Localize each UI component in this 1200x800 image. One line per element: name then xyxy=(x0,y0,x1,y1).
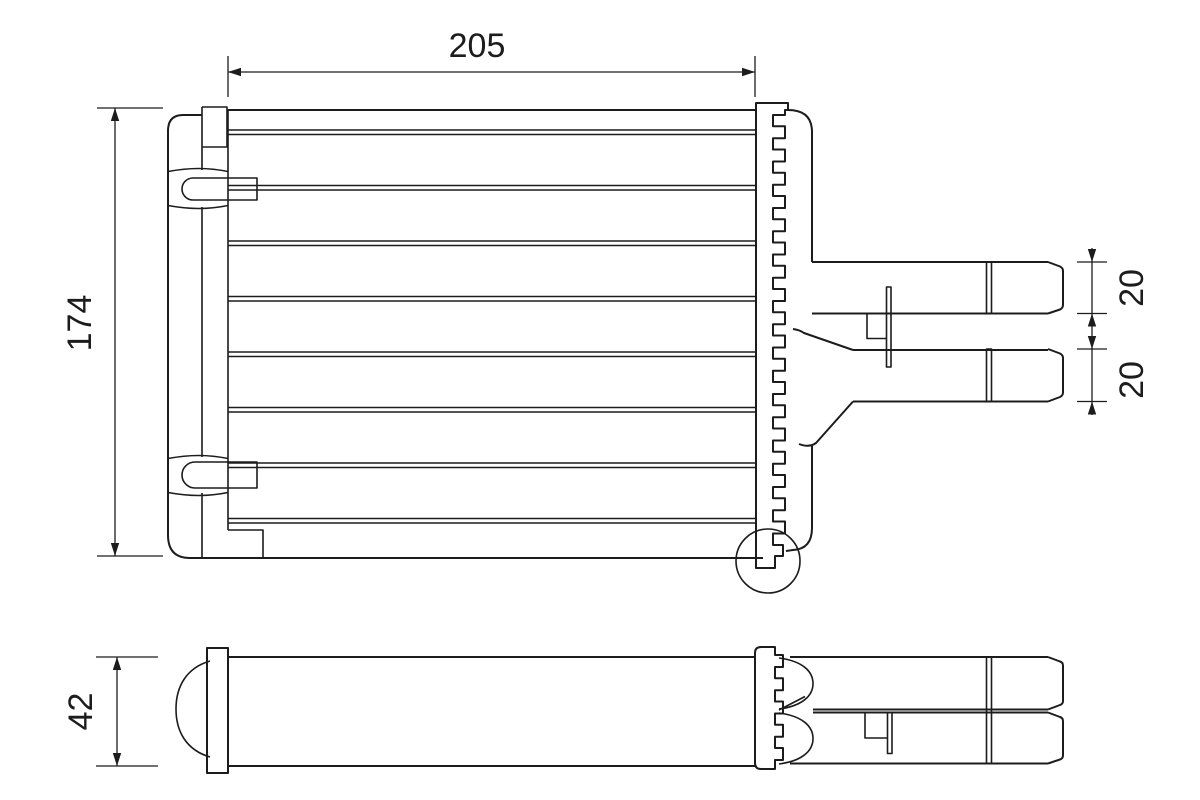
dim-width-label: 205 xyxy=(449,27,506,65)
pipe-bracket-plate xyxy=(887,287,892,367)
arrowhead-up xyxy=(1088,402,1096,415)
front-view xyxy=(168,103,1063,593)
dim-depth: 42 xyxy=(62,657,158,766)
dim-pipe-diameters: 20 20 xyxy=(1077,248,1151,415)
dim-width: 205 xyxy=(228,27,755,97)
arrowhead-up xyxy=(1088,314,1096,327)
pipe-bracket-step xyxy=(867,314,887,339)
dim-depth-extensions xyxy=(96,657,158,766)
tank-top-arc xyxy=(788,110,812,262)
pipe-bracket xyxy=(867,287,891,367)
upper-pipe-end-bottom-view xyxy=(1048,657,1063,710)
lower-pipe xyxy=(853,349,1063,402)
lower-pipe-bead xyxy=(987,349,992,402)
dim-height-extensions xyxy=(97,108,163,556)
dim-height-label: 174 xyxy=(61,295,99,352)
top-left-tab xyxy=(202,107,227,147)
lower-pipe-end-bottom-view xyxy=(1048,713,1063,764)
dim-depth-label: 42 xyxy=(62,693,100,731)
arrowhead-up xyxy=(111,108,119,121)
dim-height: 174 xyxy=(61,108,163,556)
serrated-plate xyxy=(756,103,788,568)
upper-pipe-walls xyxy=(812,262,1048,314)
bottom-view xyxy=(176,647,1063,773)
upper-pipe xyxy=(812,262,1063,314)
detail-circle xyxy=(736,529,800,593)
lower-pipe-end xyxy=(1048,349,1063,402)
funnel-upper-edge xyxy=(793,329,853,350)
pipe-band-walls xyxy=(790,657,1048,764)
arrowhead-left xyxy=(228,68,241,76)
body-outline xyxy=(228,657,755,766)
left-dome xyxy=(176,661,210,757)
heater-core-technical-drawing: 205 174 20 20 42 xyxy=(0,0,1200,800)
pipes-bottom-view xyxy=(790,657,1063,764)
right-domes xyxy=(779,658,813,764)
core-tube-lines xyxy=(228,130,756,523)
upper-pipe-end xyxy=(1048,262,1063,314)
bracket-step-bottom-view xyxy=(865,713,888,739)
mounting-clip-top xyxy=(168,169,257,209)
bracket-plate-bottom-view xyxy=(888,713,893,754)
upper-pipe-bead xyxy=(987,262,992,314)
arrowhead-up xyxy=(113,657,121,670)
arrowhead-down xyxy=(1088,249,1096,262)
serrated-plate-bottom-view xyxy=(755,647,783,769)
tank-lower-edge xyxy=(786,446,812,551)
right-tank-funnel xyxy=(786,110,853,551)
end-plate xyxy=(207,648,228,773)
dim-upper-pipe-label: 20 xyxy=(1113,269,1151,307)
arrowhead-down xyxy=(111,543,119,556)
funnel-lower-edge xyxy=(799,402,853,446)
mounting-clip-bottom xyxy=(168,456,257,496)
dim-lower-pipe-label: 20 xyxy=(1113,361,1151,399)
clip-bottom-slot xyxy=(182,462,257,488)
lower-dome xyxy=(779,713,813,764)
lower-pipe-walls xyxy=(853,350,1048,402)
arrowhead-right xyxy=(742,68,755,76)
technical-drawing-page: 205 174 20 20 42 xyxy=(0,0,1200,800)
arrowhead-down xyxy=(113,753,121,766)
clip-top-body xyxy=(168,169,228,209)
arrowhead-down xyxy=(1088,336,1096,349)
clip-top-slot xyxy=(182,178,257,200)
